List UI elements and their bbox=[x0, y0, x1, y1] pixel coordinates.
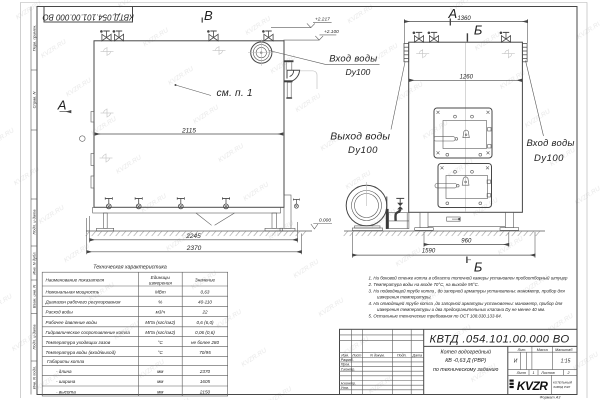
svg-text:Рабочее давление воды: Рабочее давление воды bbox=[46, 320, 98, 325]
svg-text:1260: 1260 bbox=[460, 75, 474, 81]
svg-text:А: А bbox=[57, 97, 67, 112]
svg-text:°С: °С bbox=[158, 350, 164, 355]
svg-text:Дата: Дата bbox=[412, 353, 422, 357]
svg-text:Техническая характеристика: Техническая характеристика bbox=[93, 265, 167, 271]
svg-text:1590: 1590 bbox=[422, 249, 436, 255]
svg-text:N докум.: N докум. bbox=[370, 353, 385, 357]
svg-text:КВТД.054.101.00.000 ВО: КВТД.054.101.00.000 ВО bbox=[43, 12, 134, 21]
svg-text:0,6 (6,0): 0,6 (6,0) bbox=[196, 320, 214, 325]
svg-text:Утв.: Утв. bbox=[341, 386, 349, 390]
svg-text:Инв. N дубл.: Инв. N дубл. bbox=[32, 251, 37, 274]
svg-text:Наименование показателя: Наименование показателя bbox=[46, 277, 105, 282]
svg-text:2115: 2115 bbox=[181, 127, 196, 134]
svg-text:Вход воды: Вход воды bbox=[329, 53, 377, 64]
svg-text:Взам. инв. N: Взам. инв. N bbox=[32, 285, 37, 308]
svg-text:2370: 2370 bbox=[199, 369, 211, 374]
svg-text:Т.контр.: Т.контр. bbox=[341, 367, 356, 371]
svg-text:КВТД .054.101.00.000 ВО: КВТД .054.101.00.000 ВО bbox=[429, 333, 569, 345]
svg-text:Инв. N подл.: Инв. N подл. bbox=[32, 366, 37, 389]
svg-text:Н.контр.: Н.контр. bbox=[341, 381, 356, 385]
svg-text:%: % bbox=[158, 300, 162, 305]
svg-text:Выход воды: Выход воды bbox=[330, 131, 390, 142]
svg-text:0.000: 0.000 bbox=[319, 218, 331, 224]
svg-text:0,06 (0,6): 0,06 (0,6) bbox=[195, 330, 215, 335]
svg-text:960: 960 bbox=[461, 238, 472, 244]
svg-text:Единицы: Единицы bbox=[151, 275, 171, 280]
svg-text:2370: 2370 bbox=[186, 245, 202, 252]
svg-text:не более 280: не более 280 bbox=[191, 340, 219, 345]
svg-text:МВт: МВт bbox=[155, 289, 166, 294]
svg-text:см. п. 1: см. п. 1 bbox=[217, 88, 253, 99]
svg-text:измерения: измерения bbox=[149, 280, 173, 285]
svg-text:Температура уходящих газов: Температура уходящих газов bbox=[46, 340, 111, 345]
svg-text:Изм.: Изм. bbox=[341, 353, 349, 357]
svg-text:КВ -0,63 Д (РВР): КВ -0,63 Д (РВР) bbox=[445, 358, 486, 364]
svg-text:Температура воды (вход/выход): Температура воды (вход/выход) bbox=[46, 350, 117, 355]
svg-text:Гидравлическое сопротивление к: Гидравлическое сопротивление котла bbox=[46, 330, 131, 335]
svg-text:+2.217: +2.217 bbox=[315, 17, 330, 23]
svg-text:Вход воды: Вход воды bbox=[527, 137, 575, 148]
svg-text:+2.100: +2.100 bbox=[324, 29, 339, 35]
svg-text:Значение: Значение bbox=[195, 277, 216, 282]
svg-text:1: 1 bbox=[532, 371, 534, 375]
svg-text:Dy100: Dy100 bbox=[348, 145, 378, 156]
svg-text:2: 2 bbox=[566, 371, 569, 375]
svg-text:2245: 2245 bbox=[185, 233, 201, 240]
svg-text:Масштаб: Масштаб bbox=[555, 348, 573, 352]
svg-text:Формат А3: Формат А3 bbox=[540, 396, 562, 400]
svg-text:по техническому заданию: по техническому заданию bbox=[433, 367, 498, 373]
svg-text:1605: 1605 bbox=[200, 379, 211, 384]
svg-text:2. Температура воды на входе: 2. Температура воды на входе 70°С, на вы… bbox=[368, 282, 480, 287]
svg-text:- ширина: - ширина bbox=[56, 379, 76, 384]
svg-text:А: А bbox=[448, 6, 458, 21]
svg-text:4. На отводящей трубе котла ,: 4. На отводящей трубе котла ,до запорной… bbox=[369, 301, 563, 306]
svg-text:3. На подводящей трубе котла: 3. На подводящей трубе котла , до запорн… bbox=[369, 289, 566, 294]
svg-text:Лист: Лист bbox=[516, 371, 527, 375]
svg-text:И: И bbox=[514, 359, 518, 365]
svg-text:измерения температуры.: измерения температуры. bbox=[377, 295, 432, 300]
svg-text:Котел водогрейный: Котел водогрейный bbox=[441, 349, 491, 356]
svg-text:мм: мм bbox=[157, 389, 164, 394]
svg-text:- высота: - высота bbox=[56, 389, 76, 394]
svg-text:0,63: 0,63 bbox=[201, 289, 210, 294]
svg-text:1360: 1360 bbox=[457, 16, 471, 22]
svg-text:1. На боковой стенке котла в: 1. На боковой стенке котла в области топ… bbox=[369, 276, 569, 281]
svg-text:2150: 2150 bbox=[199, 389, 211, 394]
svg-text:40-110: 40-110 bbox=[198, 300, 212, 305]
svg-text:Подп. и дата: Подп. и дата bbox=[32, 324, 37, 350]
svg-text:Пров.: Пров. bbox=[341, 363, 350, 367]
svg-text:Листов: Листов bbox=[540, 371, 555, 375]
svg-text:Б: Б bbox=[474, 23, 483, 38]
svg-text:мм: мм bbox=[157, 369, 164, 374]
svg-text:°С: °С bbox=[158, 340, 164, 345]
svg-text:Б: Б bbox=[474, 260, 483, 275]
svg-text:Масса: Масса bbox=[537, 348, 548, 352]
svg-text:Расход воды: Расход воды bbox=[46, 310, 74, 315]
svg-text:мм: мм bbox=[157, 379, 164, 384]
svg-text:Подп.: Подп. bbox=[397, 353, 407, 357]
svg-text:1:15: 1:15 bbox=[561, 359, 571, 365]
svg-text:5. Остальные технические треб: 5. Остальные технические требования по О… bbox=[369, 314, 502, 319]
svg-text:22: 22 bbox=[201, 310, 208, 315]
svg-text:МПа (кгс/см2): МПа (кгс/см2) bbox=[145, 320, 175, 325]
svg-text:Разраб.: Разраб. bbox=[341, 358, 354, 362]
svg-text:измерения температуры и два пр: измерения температуры и два предохраните… bbox=[377, 307, 545, 312]
svg-text:ЗАВОД РЭП: ЗАВОД РЭП bbox=[553, 385, 571, 389]
svg-text:Dy100: Dy100 bbox=[346, 67, 371, 77]
svg-text:В: В bbox=[204, 8, 213, 23]
svg-text:70/95: 70/95 bbox=[199, 350, 211, 355]
svg-text:Подп. и дата: Подп. и дата bbox=[32, 209, 37, 235]
svg-text:Габариты котла: Габариты котла bbox=[47, 359, 85, 364]
svg-text:Перв. примен.: Перв. примен. bbox=[32, 25, 37, 52]
svg-text:Лист: Лист bbox=[351, 353, 361, 357]
svg-text:KVZR: KVZR bbox=[517, 379, 549, 393]
svg-text:Номинальная мощность: Номинальная мощность bbox=[46, 289, 100, 294]
svg-text:- длина: - длина bbox=[56, 369, 72, 374]
svg-text:Справ. N: Справ. N bbox=[32, 92, 37, 109]
svg-text:м3/ч: м3/ч bbox=[156, 310, 166, 315]
svg-text:Диапазон рабочего регулировани: Диапазон рабочего регулирования bbox=[45, 300, 122, 305]
svg-text:Лит.: Лит. bbox=[517, 348, 527, 352]
svg-text:МПа (кгс/см2): МПа (кгс/см2) bbox=[145, 330, 175, 335]
svg-text:Dy100: Dy100 bbox=[534, 153, 564, 164]
